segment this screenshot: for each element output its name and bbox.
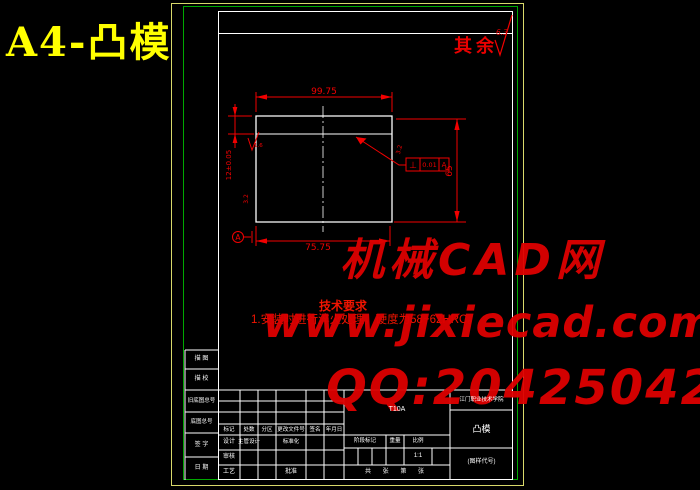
- dimension-lines: [228, 15, 512, 246]
- dim-bottom-text: 75.75: [305, 243, 331, 253]
- cell-audit: 审核: [218, 454, 240, 461]
- fcf-symbol: ⊥: [409, 161, 417, 171]
- cell-chief-design: 主管设计: [236, 439, 262, 445]
- cell-drawing-code: (图样代号): [450, 459, 513, 466]
- roughness-right-text: 3.2: [395, 144, 404, 155]
- cell-scale-label: 比例: [404, 438, 432, 444]
- cell-unit-name: 江门职业技术学院: [450, 397, 513, 403]
- watermark-url: www.jixiecad.com: [263, 298, 700, 348]
- margin-row-trace-check: 描 校: [186, 376, 217, 383]
- header-zone: 分区: [258, 427, 276, 433]
- margin-row-signature: 签 字: [186, 442, 217, 449]
- cell-stage-label: 阶段标记: [344, 438, 386, 444]
- cad-viewport: A4-凸模 其余: [0, 0, 700, 490]
- cell-process: 工艺: [218, 469, 240, 476]
- cell-weight: 重量: [386, 438, 404, 444]
- fcf-datum: A: [442, 161, 447, 169]
- roughness-step-text: 1.6: [254, 143, 263, 149]
- cell-sheet-note: 共 张 第 张: [344, 469, 450, 476]
- cell-scale-value: 1:1: [404, 453, 432, 460]
- dim-step-text: 12±0.05: [225, 150, 233, 180]
- roughness-left-text: 3.2: [243, 194, 250, 204]
- part-outline: [256, 116, 392, 222]
- margin-row-negative-no: 底图总号: [185, 419, 218, 425]
- dimension-arrowheads: [233, 94, 460, 243]
- header-date: 年月日: [324, 427, 344, 433]
- cell-part-name: 凸模: [450, 424, 513, 434]
- margin-row-tracing: 描 图: [186, 356, 217, 363]
- header-change-file: 更改文件号: [276, 427, 306, 433]
- margin-row-date: 日 期: [186, 465, 217, 472]
- cell-approve: 批准: [276, 469, 306, 476]
- watermark-site-name: 机械CAD网: [340, 224, 605, 288]
- header-count: 处数: [240, 427, 258, 433]
- datum-label: A: [235, 233, 241, 242]
- margin-row-old-negative: 旧底图总号: [185, 398, 218, 404]
- dim-right-text: 65: [445, 165, 455, 176]
- header-mark: 标记: [218, 427, 240, 433]
- cell-standardization: 标准化: [276, 439, 306, 445]
- cell-material: T10A: [344, 406, 450, 414]
- header-sign: 签名: [306, 427, 324, 433]
- corner-roughness-value: 6.3: [496, 28, 508, 37]
- dim-top-text: 99.75: [311, 87, 337, 97]
- fcf-value: 0.01: [422, 161, 436, 169]
